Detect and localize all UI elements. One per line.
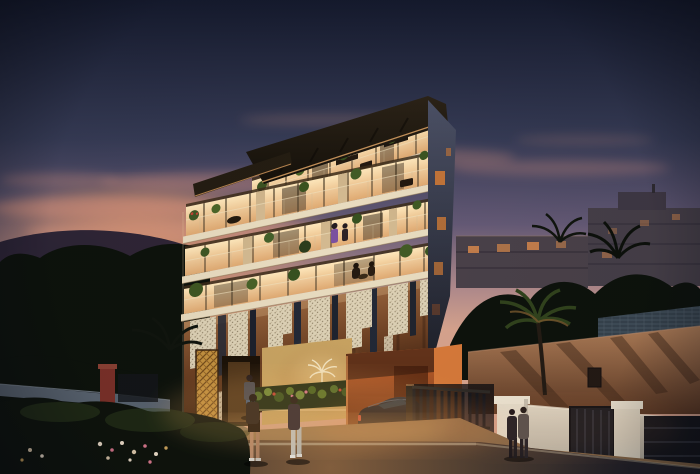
architectural-render <box>0 0 700 474</box>
vignette <box>0 0 700 474</box>
render-canvas <box>0 0 700 474</box>
